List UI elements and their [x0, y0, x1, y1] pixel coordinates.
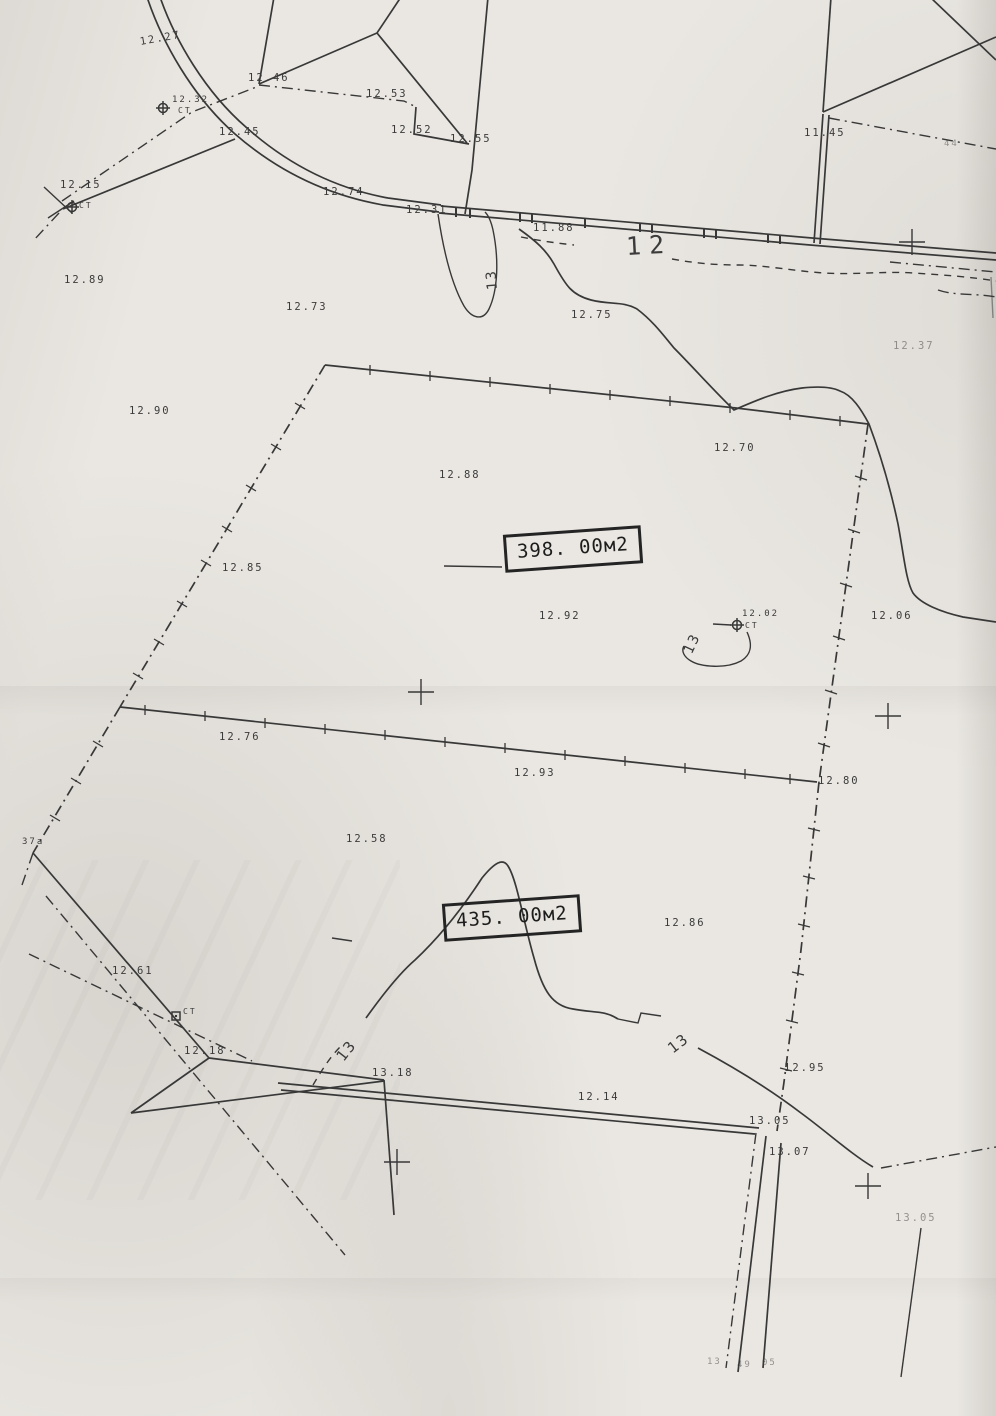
contour-linework [313, 212, 996, 1168]
spot-elevation-label: 12.37 [893, 341, 935, 352]
boundary-line [823, 0, 831, 112]
boundary-line-dashed [890, 262, 996, 272]
spot-elevation-label: 12.92 [539, 611, 581, 622]
contour-13-line [366, 862, 618, 1019]
spot-elevation-label: 12.55 [450, 134, 492, 145]
spot-elevation-label: 13.05 [749, 1116, 791, 1127]
spot-elevation-label: 12.93 [514, 768, 556, 779]
survey-station-marker [730, 618, 744, 632]
spot-elevation-label: 12.70 [714, 443, 756, 454]
parcel-number-label: 37a [22, 838, 44, 847]
spot-elevation-label: 13.05 [895, 1213, 937, 1224]
scan-mark [991, 277, 993, 318]
boundary-line [465, 0, 488, 214]
grid-cross [899, 229, 925, 255]
box-leader-line [332, 566, 502, 941]
spot-elevation-label: 12.75 [571, 310, 613, 321]
boundary-line-dashed [829, 118, 996, 149]
grid-cross [384, 1149, 410, 1175]
grid-cross [855, 1173, 881, 1199]
map-symbols [65, 101, 925, 1199]
boundary-line [823, 37, 996, 112]
spot-elevation-label: 12.14 [578, 1092, 620, 1103]
spot-elevation-label: 12.15 [60, 180, 102, 191]
boundary-ticks [133, 403, 305, 679]
spot-elevation-label: 12.90 [129, 406, 171, 417]
road-edge [441, 206, 996, 253]
spot-elevation-label: 12.73 [286, 302, 328, 313]
contour-label: 13 [484, 269, 500, 291]
contour-label: 12 [625, 232, 672, 259]
survey-map-sheet: 398. 00м2 435. 00м2 12.2712.4612.5312.32… [0, 0, 996, 1416]
spot-elevation-label: 11.45 [804, 128, 846, 139]
spot-elevation-label: 12.06 [871, 611, 913, 622]
contour-13-line [881, 1147, 996, 1168]
spot-elevation-label: 05 [762, 1359, 777, 1368]
road-edge [278, 1083, 759, 1134]
contour-13-connector [618, 1013, 661, 1023]
lane-line [738, 1136, 766, 1372]
junction-lines [131, 1058, 384, 1113]
survey-station-marker [156, 101, 170, 115]
spot-elevation-label: 12.95 [784, 1063, 826, 1074]
parcel2-left-edge [33, 707, 120, 853]
bottom-linework [29, 566, 921, 1377]
divider-line [120, 707, 817, 782]
station-label: CT [745, 622, 759, 630]
road-linework [147, 0, 996, 1215]
boundary-line [901, 1228, 921, 1377]
boundary-line [259, 0, 467, 143]
spot-elevation-label: 12.74 [323, 187, 365, 198]
parcel2-right-edge [777, 782, 819, 1131]
spot-elevation-label: 11.88 [533, 223, 575, 234]
station-label: CT [183, 1008, 197, 1016]
contour-12-line [521, 237, 996, 281]
station-leader-line [713, 624, 731, 625]
spot-elevation-label: 13.18 [372, 1068, 414, 1079]
spot-elevation-label: 12.89 [64, 275, 106, 286]
station-label: CT [79, 202, 93, 210]
boundary-line-dashed [46, 896, 345, 1255]
grid-cross [408, 679, 434, 705]
junction-marks [34, 213, 59, 240]
spot-elevation-label: 49 [737, 1361, 752, 1370]
spot-elevation-label: 12.61 [112, 966, 154, 977]
spot-elevation-label: 12.86 [664, 918, 706, 929]
parcel-top-edge [325, 365, 868, 424]
spot-elevation-label: 12.76 [219, 732, 261, 743]
spot-elevation-label: 12.02 [742, 610, 779, 619]
spot-elevation-label: 13 [707, 1358, 722, 1367]
spot-elevation-label: 12.85 [222, 563, 264, 574]
spot-elevation-label: 12.80 [818, 776, 860, 787]
lane-line [763, 1143, 781, 1368]
top-right-linework [814, 0, 996, 318]
survey-linework [0, 0, 996, 1416]
spot-elevation-label: 12.58 [346, 834, 388, 845]
boundary-line-dashed [938, 290, 996, 297]
spot-elevation-label: 44 [944, 140, 959, 149]
spot-elevation-label: 12.46 [248, 73, 290, 84]
spot-elevation-label: 12.32 [172, 96, 209, 105]
boundary-ticks [780, 828, 820, 1071]
spot-elevation-label: 12.52 [391, 125, 433, 136]
station-label: CT [178, 107, 192, 115]
lane-line [726, 1133, 756, 1368]
boundary-ticks [50, 741, 103, 821]
spot-elevation-label: 12.53 [366, 89, 408, 100]
boundary-line [63, 139, 235, 209]
spot-elevation-label: 12.45 [219, 127, 261, 138]
spot-elevation-label: 12.31 [406, 205, 448, 216]
spot-elevation-label: 12.88 [439, 470, 481, 481]
boundary-line-dashed [22, 853, 33, 885]
grid-cross [875, 703, 901, 729]
spot-elevation-label: 13.07 [769, 1147, 811, 1158]
contour-13-loop [438, 212, 497, 317]
spot-elevation-label: 12.18 [184, 1046, 226, 1057]
survey-station-marker [65, 200, 79, 214]
